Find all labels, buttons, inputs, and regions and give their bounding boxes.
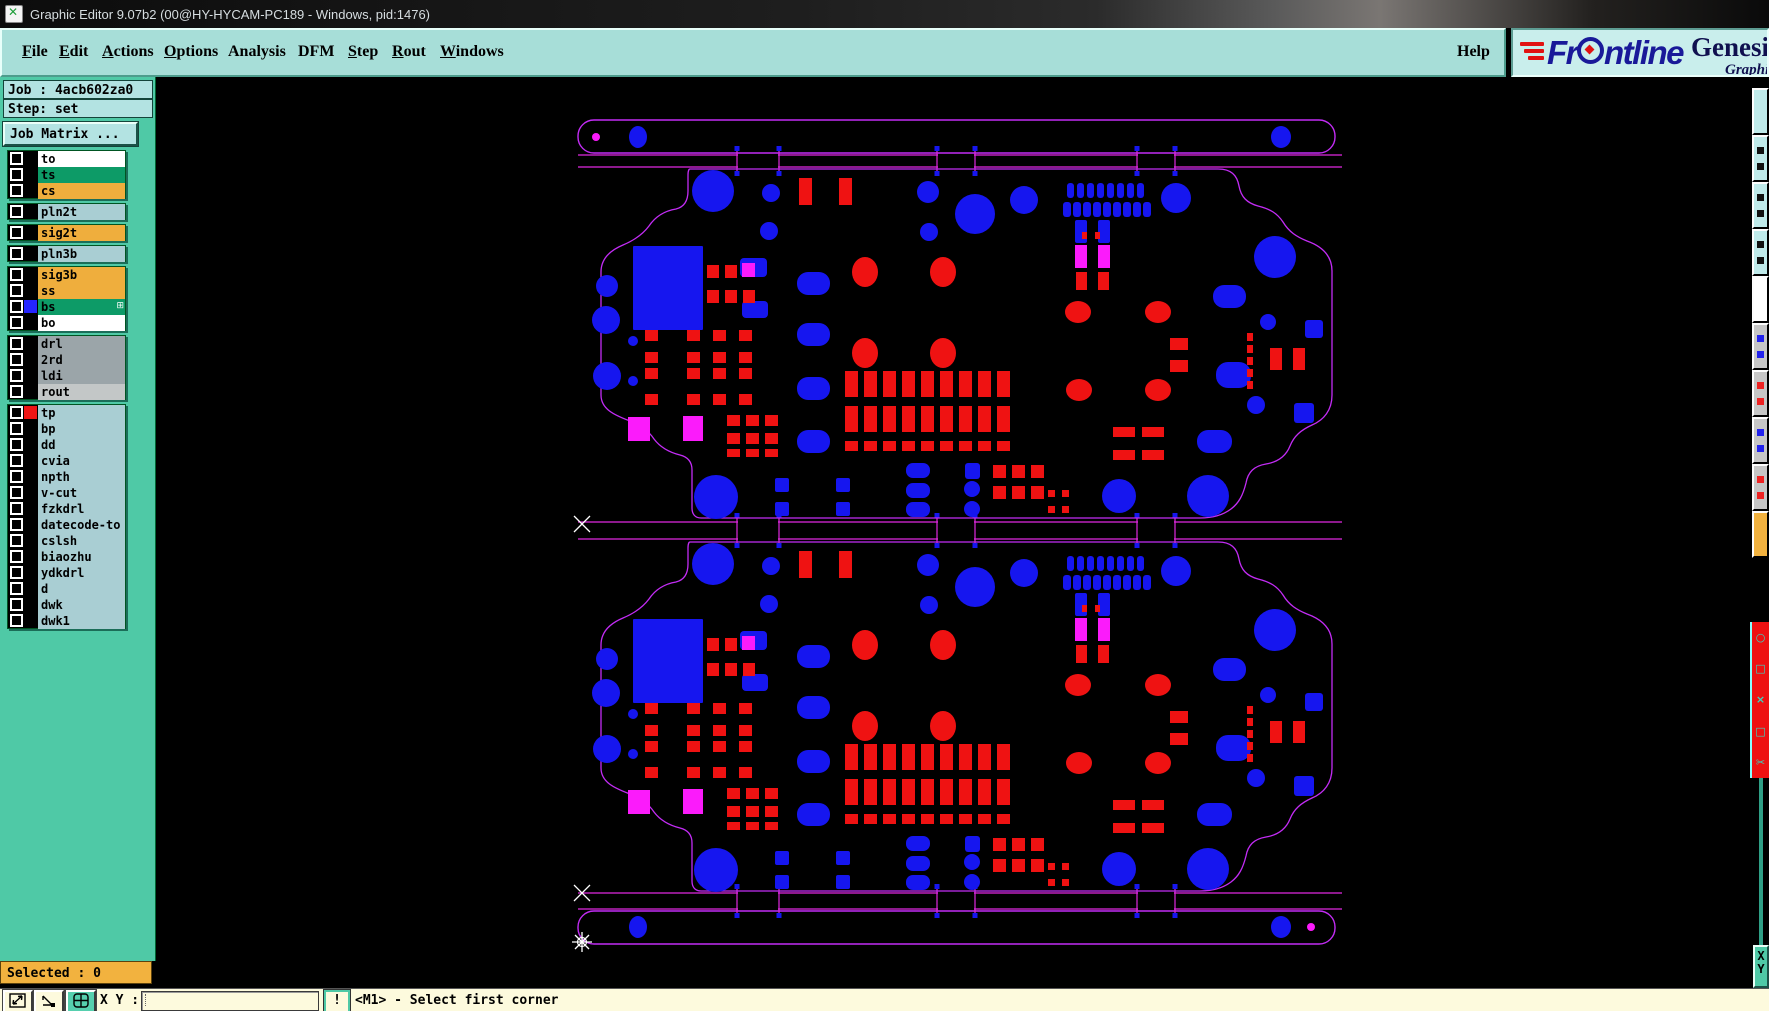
layer-color-swatch[interactable]: [24, 470, 37, 483]
grid-icon: [72, 993, 90, 1009]
right-strip-button[interactable]: [1752, 135, 1769, 182]
alert-button[interactable]: !: [324, 990, 350, 1011]
layer-color-swatch[interactable]: [24, 369, 37, 382]
menu-bar: FileEditActionsOptionsAnalysisDFMStepRou…: [0, 28, 1506, 77]
layer-row-tp[interactable]: tp: [8, 405, 125, 420]
layer-group: tpbpddcvianpthv-cutfzkdrldatecode-tocsls…: [7, 404, 126, 629]
red-toolbar-glyph-icon[interactable]: □: [1755, 725, 1765, 738]
layer-visibility-checkbox[interactable]: [10, 268, 23, 281]
xy-readout-panel: X Y: [1753, 945, 1769, 988]
layer-row-to[interactable]: to: [8, 151, 125, 166]
right-strip-button[interactable]: [1752, 511, 1769, 558]
menu-dfm[interactable]: DFM: [298, 43, 334, 61]
right-strip-button[interactable]: [1752, 370, 1769, 417]
layer-visibility-checkbox[interactable]: [10, 470, 23, 483]
right-strip-button[interactable]: [1752, 182, 1769, 229]
layer-row-dwk1[interactable]: dwk1: [8, 613, 125, 628]
right-strip-button[interactable]: [1752, 417, 1769, 464]
layer-visibility-checkbox[interactable]: [10, 454, 23, 467]
layer-visibility-checkbox[interactable]: [10, 518, 23, 531]
red-toolbar-glyph-icon[interactable]: ×: [1756, 693, 1765, 706]
layer-name-label: fzkdrl: [38, 501, 125, 517]
step-label: Step: set: [3, 99, 153, 118]
layer-name-label: 2rd: [38, 352, 125, 368]
layer-row-pln3b[interactable]: pln3b: [8, 246, 125, 261]
layer-name-label: cs: [38, 183, 125, 199]
layer-name-label: ts: [38, 167, 125, 183]
right-strip-button[interactable]: [1752, 276, 1769, 323]
layer-row-cvia[interactable]: cvia: [8, 453, 125, 468]
job-matrix-button[interactable]: Job Matrix ...: [3, 122, 138, 146]
menu-windows[interactable]: Windows: [440, 43, 504, 61]
layer-group: totscs: [7, 150, 126, 199]
job-label: Job : 4acb602za0: [3, 80, 153, 99]
layer-row-pln2t[interactable]: pln2t: [8, 204, 125, 219]
layer-name-label: biaozhu: [38, 549, 125, 565]
layer-name-label: sig3b: [38, 267, 125, 283]
grid-snap-button[interactable]: [66, 990, 96, 1011]
layer-color-swatch[interactable]: [24, 284, 37, 297]
layer-name-label: ss: [38, 283, 125, 299]
layer-row-dwk[interactable]: dwk: [8, 597, 125, 612]
layer-name-label: bp: [38, 421, 125, 437]
layer-name-label: ydkdrl: [38, 565, 125, 581]
layer-visibility-checkbox[interactable]: [10, 502, 23, 515]
layer-row-cslsh[interactable]: cslsh: [8, 533, 125, 548]
layer-color-swatch[interactable]: [24, 486, 37, 499]
frontline-logo-panel: Frntline Genesis 2 Graphic Ed: [1511, 28, 1769, 77]
status-bar: X Y : ! <M1> - Select first corner: [0, 988, 1769, 1011]
frontline-brand: Frntline: [1547, 34, 1683, 72]
right-strip-button[interactable]: [1752, 464, 1769, 511]
layer-name-label: pln2t: [38, 204, 125, 220]
layer-name-label: dwk1: [38, 613, 125, 629]
layer-visibility-checkbox[interactable]: [10, 550, 23, 563]
layer-row-drl[interactable]: drl: [8, 336, 125, 351]
layer-row-bp[interactable]: bp: [8, 421, 125, 436]
layer-visibility-checkbox[interactable]: [10, 438, 23, 451]
layer-group: drl2rdldirout: [7, 335, 126, 400]
layer-visibility-checkbox[interactable]: [10, 582, 23, 595]
layer-row-ts[interactable]: ts: [8, 167, 125, 182]
xy-coords-label: X Y :: [100, 993, 139, 1008]
menu-edit[interactable]: Edit: [59, 43, 88, 61]
layer-color-swatch[interactable]: [24, 337, 37, 350]
layer-color-swatch[interactable]: [24, 353, 37, 366]
layer-color-swatch[interactable]: [24, 454, 37, 467]
product-subtitle: Graphic Ed: [1725, 62, 1769, 77]
menu-help[interactable]: Help: [1457, 43, 1490, 61]
layer-row-bs[interactable]: bs⊞: [8, 299, 125, 314]
layer-visibility-checkbox[interactable]: [10, 184, 23, 197]
layer-row-ss[interactable]: ss: [8, 283, 125, 298]
layer-visibility-checkbox[interactable]: [10, 152, 23, 165]
layer-row-datecode-to[interactable]: datecode-to: [8, 517, 125, 532]
right-strip-button[interactable]: [1752, 229, 1769, 276]
layer-row-npth[interactable]: npth: [8, 469, 125, 484]
menu-rout[interactable]: Rout: [392, 43, 426, 61]
right-strip-button[interactable]: [1752, 323, 1769, 370]
layer-row-v-cut[interactable]: v-cut: [8, 485, 125, 500]
layer-color-swatch[interactable]: [24, 205, 37, 218]
layer-visibility-checkbox[interactable]: [10, 316, 23, 329]
diagonal-arrow-icon: [9, 993, 27, 1009]
layer-row-rout[interactable]: rout: [8, 384, 125, 399]
layer-name-label: tp: [38, 405, 125, 421]
layer-name-label: sig2t: [38, 225, 125, 241]
layer-visibility-checkbox[interactable]: [10, 337, 23, 350]
menu-actions[interactable]: Actions: [102, 43, 154, 61]
layer-name-label: dwk: [38, 597, 125, 613]
layer-visibility-checkbox[interactable]: [10, 284, 23, 297]
red-toolbar-glyph-icon[interactable]: ✂: [1756, 756, 1765, 769]
layer-active-badge-icon: ⊞: [116, 301, 124, 311]
menu-step[interactable]: Step: [348, 43, 378, 61]
layer-visibility-checkbox[interactable]: [10, 247, 23, 260]
layer-row-bo[interactable]: bo: [8, 315, 125, 330]
right-teal-divider: [1759, 778, 1763, 945]
angle-measure-icon: [40, 993, 58, 1009]
layer-color-swatch[interactable]: [24, 247, 37, 260]
layer-row-ldi[interactable]: ldi: [8, 368, 125, 383]
layer-color-swatch[interactable]: [24, 385, 37, 398]
layer-visibility-checkbox[interactable]: [10, 534, 23, 547]
layer-group: sig2t: [7, 224, 126, 241]
layer-name-label: cvia: [38, 453, 125, 469]
window-title: Graphic Editor 9.07b2 (00@HY-HYCAM-PC189…: [30, 7, 430, 22]
layer-color-swatch[interactable]: [24, 184, 37, 197]
layer-name-label: ldi: [38, 368, 125, 384]
layer-visibility-checkbox[interactable]: [10, 486, 23, 499]
layer-group: pln3b: [7, 245, 126, 262]
right-red-toolbar: ○□×□✂: [1750, 622, 1769, 778]
layer-visibility-checkbox[interactable]: [10, 205, 23, 218]
layer-visibility-checkbox[interactable]: [10, 566, 23, 579]
layer-color-swatch[interactable]: [24, 152, 37, 165]
layer-name-label: pln3b: [38, 246, 125, 262]
red-toolbar-glyph-icon[interactable]: □: [1755, 662, 1765, 675]
xy-coords-input[interactable]: [141, 991, 319, 1011]
sidebar: Job : 4acb602za0 Step: set Job Matrix ..…: [0, 77, 156, 961]
layer-color-swatch[interactable]: [24, 300, 37, 313]
layer-name-label: datecode-to: [38, 517, 125, 533]
menu-file[interactable]: File: [22, 43, 48, 61]
layer-name-label: bo: [38, 315, 125, 331]
layer-visibility-checkbox[interactable]: [10, 168, 23, 181]
right-toolbar-strip: [1752, 88, 1769, 558]
layer-row-sig3b[interactable]: sig3b: [8, 267, 125, 282]
layer-visibility-checkbox[interactable]: [10, 369, 23, 382]
layer-color-swatch[interactable]: [24, 566, 37, 579]
layer-color-swatch[interactable]: [24, 534, 37, 547]
layer-visibility-checkbox[interactable]: [10, 226, 23, 239]
layer-color-swatch[interactable]: [24, 614, 37, 627]
red-toolbar-glyph-icon[interactable]: ○: [1756, 631, 1766, 644]
layer-row-biaozhu[interactable]: biaozhu: [8, 549, 125, 564]
layer-name-label: npth: [38, 469, 125, 485]
layer-row-dd[interactable]: dd: [8, 437, 125, 452]
layer-color-swatch[interactable]: [24, 598, 37, 611]
layer-name-label: cslsh: [38, 533, 125, 549]
layer-group: sig3bssbs⊞bo: [7, 266, 126, 331]
layer-visibility-checkbox[interactable]: [10, 353, 23, 366]
y-readout-label: Y: [1755, 963, 1767, 976]
prompt-message: <M1> - Select first corner: [355, 993, 559, 1008]
layer-visibility-checkbox[interactable]: [10, 422, 23, 435]
layer-row-d[interactable]: d: [8, 581, 125, 596]
selected-count-badge: Selected : 0: [0, 961, 152, 984]
pcb-canvas[interactable]: [156, 77, 1769, 988]
layer-color-swatch[interactable]: [24, 550, 37, 563]
layer-visibility-checkbox[interactable]: [10, 598, 23, 611]
layer-row-ydkdrl[interactable]: ydkdrl: [8, 565, 125, 580]
layer-row-2rd[interactable]: 2rd: [8, 352, 125, 367]
layer-visibility-checkbox[interactable]: [10, 406, 23, 419]
menu-options[interactable]: Options: [164, 43, 218, 61]
text-caret: [145, 994, 147, 1006]
layer-group: pln2t: [7, 203, 126, 220]
layer-color-swatch[interactable]: [24, 518, 37, 531]
layer-name-label: bs⊞: [38, 299, 125, 315]
layer-color-swatch[interactable]: [24, 502, 37, 515]
right-strip-button[interactable]: [1752, 88, 1769, 135]
layer-list: totscspln2tsig2tpln3bsig3bssbs⊞bodrl2rdl…: [7, 150, 126, 633]
layer-color-swatch[interactable]: [24, 316, 37, 329]
layer-row-fzkdrl[interactable]: fzkdrl: [8, 501, 125, 516]
layer-color-swatch[interactable]: [24, 582, 37, 595]
layer-color-swatch[interactable]: [24, 168, 37, 181]
layer-color-swatch[interactable]: [24, 226, 37, 239]
layer-name-label: to: [38, 151, 125, 167]
layer-visibility-checkbox[interactable]: [10, 300, 23, 313]
layer-visibility-checkbox[interactable]: [10, 614, 23, 627]
app-icon: [5, 5, 23, 23]
frontline-speedlines-icon: [1520, 42, 1546, 64]
menu-analysis[interactable]: Analysis: [228, 43, 286, 61]
layer-row-cs[interactable]: cs: [8, 183, 125, 198]
layer-name-label: drl: [38, 336, 125, 352]
layer-name-label: rout: [38, 384, 125, 400]
layer-name-label: dd: [38, 437, 125, 453]
title-bar: Graphic Editor 9.07b2 (00@HY-HYCAM-PC189…: [0, 0, 1769, 28]
frontline-o-icon: [1577, 37, 1604, 64]
layer-color-swatch[interactable]: [24, 438, 37, 451]
layer-color-swatch[interactable]: [24, 406, 37, 419]
layer-row-sig2t[interactable]: sig2t: [8, 225, 125, 240]
layer-color-swatch[interactable]: [24, 268, 37, 281]
measure-mode-button[interactable]: [34, 990, 64, 1011]
pointer-mode-button[interactable]: [3, 990, 33, 1011]
product-name: Genesis 2: [1691, 32, 1769, 63]
layer-name-label: v-cut: [38, 485, 125, 501]
layer-color-swatch[interactable]: [24, 422, 37, 435]
layer-visibility-checkbox[interactable]: [10, 385, 23, 398]
layer-name-label: d: [38, 581, 125, 597]
